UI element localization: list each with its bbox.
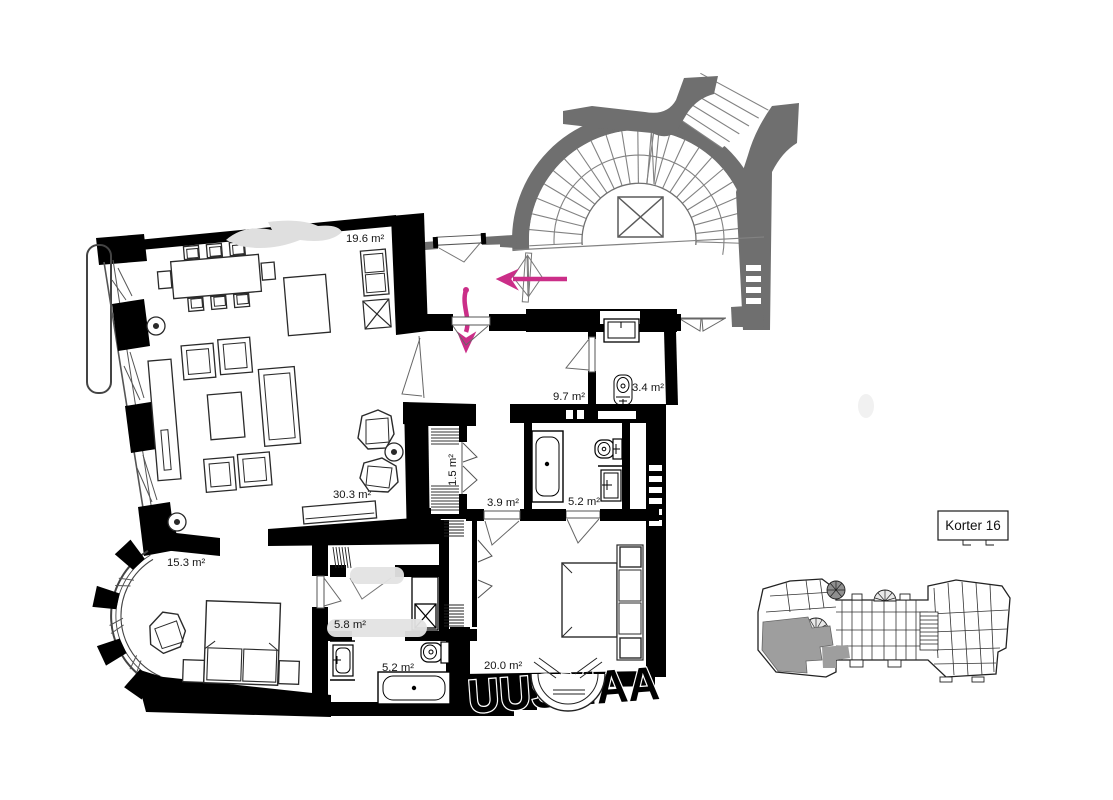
svg-text:19.6 m²: 19.6 m² <box>346 233 385 245</box>
svg-text:3.4 m²: 3.4 m² <box>632 382 664 394</box>
svg-text:1.5 m²: 1.5 m² <box>447 454 459 486</box>
svg-text:3.9 m²: 3.9 m² <box>487 497 519 509</box>
svg-text:15.3 m²: 15.3 m² <box>167 557 206 569</box>
svg-text:5.8 m²: 5.8 m² <box>334 619 366 631</box>
svg-text:Korter 16: Korter 16 <box>945 518 1001 533</box>
svg-text:5.2 m²: 5.2 m² <box>568 496 600 508</box>
svg-text:30.3 m²: 30.3 m² <box>333 489 372 501</box>
svg-text:9.7 m²: 9.7 m² <box>553 391 585 403</box>
svg-text:20.0 m²: 20.0 m² <box>484 660 523 672</box>
svg-text:5.2 m²: 5.2 m² <box>382 662 414 674</box>
